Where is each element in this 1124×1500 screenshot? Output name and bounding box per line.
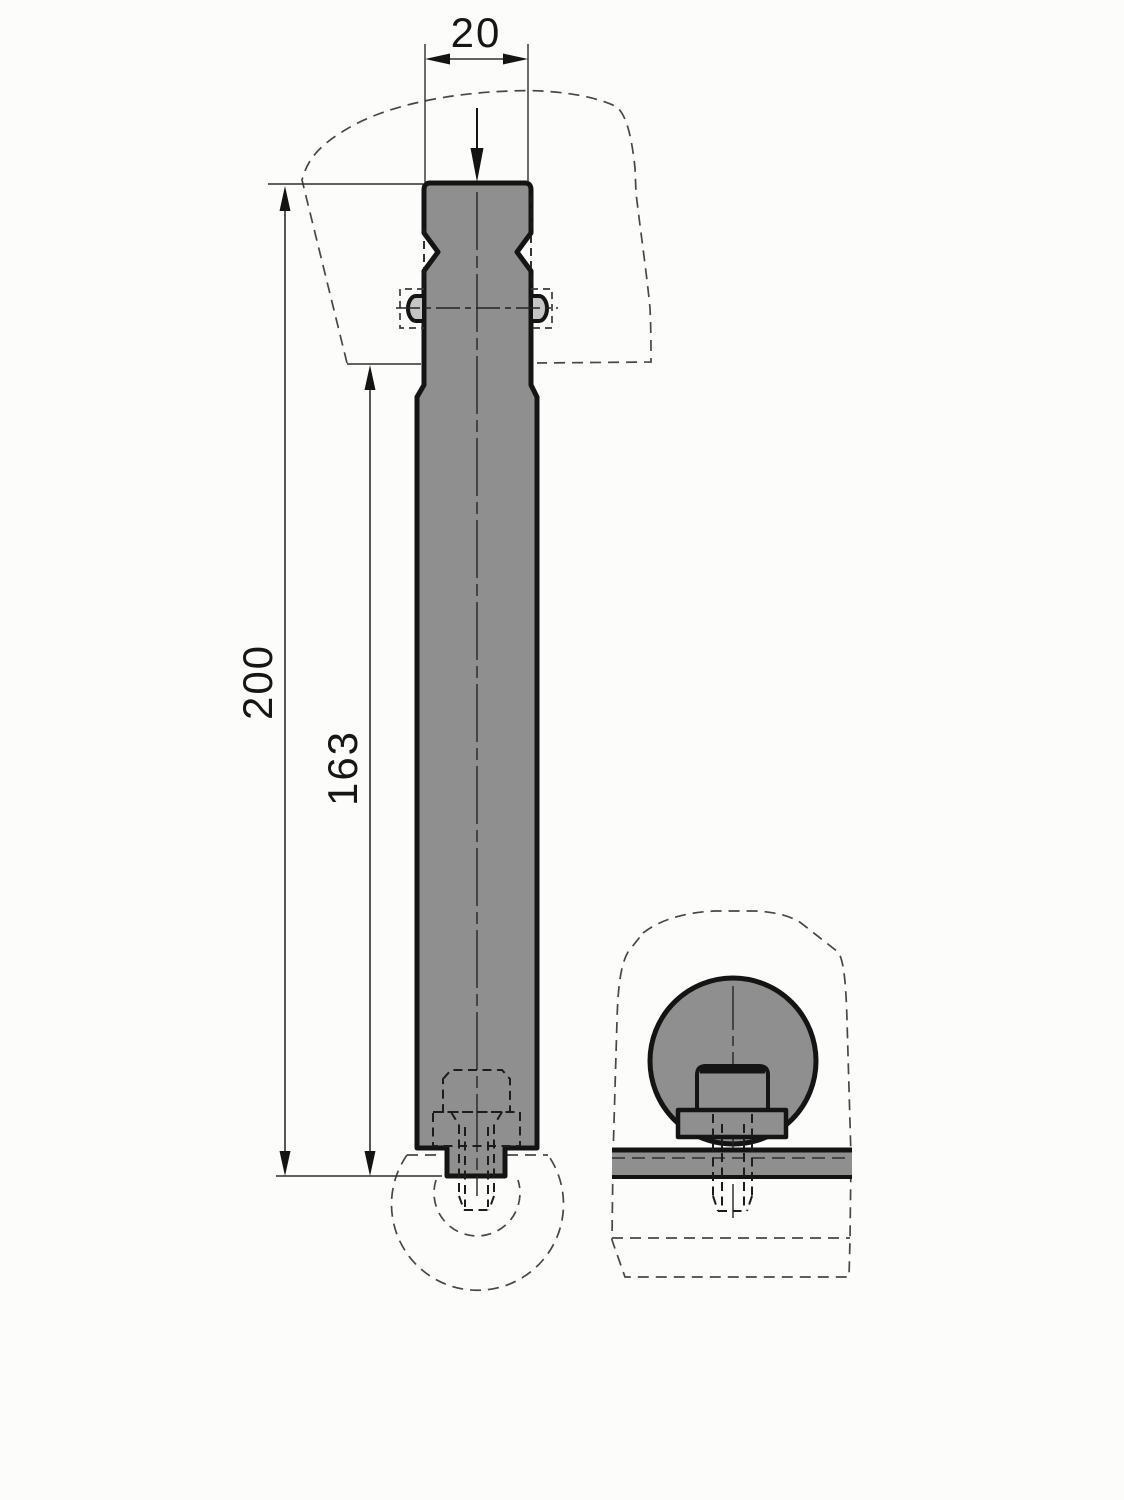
load-direction-arrow xyxy=(471,108,484,182)
arrowhead-up-icon xyxy=(365,365,376,390)
dim-text-overall-length: 200 xyxy=(234,644,281,720)
dimension-overall-length: 200 xyxy=(234,186,291,1176)
side-view xyxy=(612,911,852,1277)
dimension-head-width: 20 xyxy=(425,9,528,65)
mounting-plate xyxy=(612,1151,852,1176)
arrowhead-right-icon xyxy=(503,54,528,65)
drawing-canvas: 20 200 163 xyxy=(0,0,1124,1500)
arrowhead-up-icon xyxy=(280,186,291,211)
dim-text-body-length: 163 xyxy=(319,730,366,806)
front-view: 20 200 163 xyxy=(234,9,651,1290)
dimension-body-length: 163 xyxy=(319,365,376,1176)
arrowhead-down-icon xyxy=(365,1151,376,1176)
dim-text-head-width: 20 xyxy=(451,9,502,56)
arrowhead-left-icon xyxy=(425,54,450,65)
technical-drawing: 20 200 163 xyxy=(0,0,1124,1500)
down-arrow-icon xyxy=(471,148,484,182)
arrowhead-down-icon xyxy=(280,1151,291,1176)
bolt-flange-side xyxy=(678,1110,786,1137)
